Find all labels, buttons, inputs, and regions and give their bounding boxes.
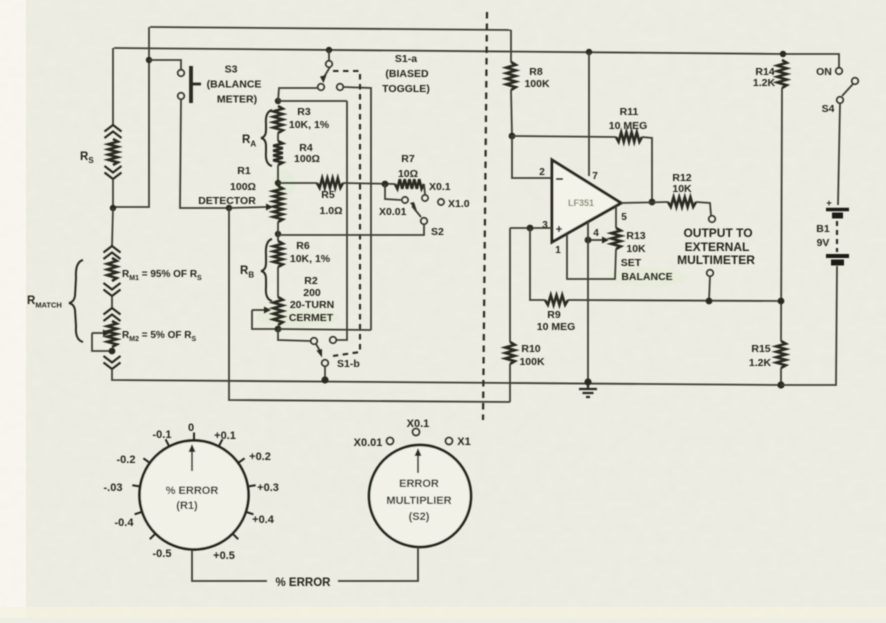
svg-text:OUTPUT TO: OUTPUT TO: [683, 226, 752, 240]
svg-text:BALANCE: BALANCE: [621, 271, 672, 283]
svg-text:R11: R11: [620, 106, 639, 118]
svg-text:(BALANCE: (BALANCE: [207, 79, 262, 91]
svg-text:R3: R3: [297, 106, 311, 118]
svg-text:S2: S2: [431, 226, 444, 238]
svg-text:20-TURN: 20-TURN: [290, 299, 334, 311]
svg-text:(R1): (R1): [176, 500, 198, 512]
svg-text:LF351: LF351: [568, 198, 594, 208]
svg-text:R15: R15: [751, 343, 770, 355]
svg-text:+0.2: +0.2: [249, 451, 271, 463]
svg-text:R13: R13: [626, 230, 645, 242]
svg-text:+0.4: +0.4: [252, 514, 275, 526]
svg-text:ERROR: ERROR: [399, 478, 439, 490]
svg-text:% ERROR: % ERROR: [276, 577, 332, 589]
svg-text:+: +: [826, 198, 832, 209]
svg-text:S1-a: S1-a: [395, 53, 417, 65]
svg-text:-0.2: -0.2: [117, 454, 136, 466]
svg-text:5: 5: [621, 212, 627, 223]
svg-text:METER): METER): [217, 94, 257, 106]
svg-text:-0.5: -0.5: [153, 548, 172, 560]
svg-text:4: 4: [593, 228, 599, 239]
svg-text:X0.1: X0.1: [407, 418, 430, 430]
svg-text:10 MEG: 10 MEG: [537, 321, 576, 333]
svg-text:EXTERNAL: EXTERNAL: [685, 240, 750, 254]
svg-text:100K: 100K: [524, 78, 550, 90]
svg-text:B1: B1: [816, 223, 830, 235]
svg-text:+0.5: +0.5: [213, 550, 235, 562]
svg-text:% ERROR: % ERROR: [166, 485, 219, 497]
svg-text:S3: S3: [225, 64, 238, 76]
svg-text:+0.1: +0.1: [214, 430, 236, 442]
svg-text:DETECTOR: DETECTOR: [198, 195, 256, 207]
svg-text:3: 3: [542, 220, 548, 231]
svg-text:S4: S4: [822, 103, 835, 115]
svg-text:10Ω: 10Ω: [398, 168, 418, 180]
svg-text:R9: R9: [547, 309, 561, 321]
svg-text:1.0Ω: 1.0Ω: [319, 205, 342, 217]
svg-text:-0.4: -0.4: [115, 517, 135, 529]
svg-text:1.2K: 1.2K: [753, 77, 776, 89]
svg-text:(S2): (S2): [409, 511, 430, 523]
svg-text:R5: R5: [321, 189, 335, 201]
svg-text:S1-b: S1-b: [337, 358, 360, 370]
svg-text:200: 200: [303, 287, 321, 299]
svg-text:MULTIMETER: MULTIMETER: [677, 253, 755, 267]
svg-text:R2: R2: [304, 275, 318, 287]
svg-text:9V: 9V: [817, 237, 830, 249]
svg-text:10K, 1%: 10K, 1%: [290, 253, 331, 265]
svg-text:R10: R10: [521, 343, 540, 355]
svg-text:1.2K: 1.2K: [749, 357, 772, 369]
svg-text:10K, 1%: 10K, 1%: [289, 119, 330, 131]
svg-text:TOGGLE): TOGGLE): [382, 83, 430, 95]
svg-text:0: 0: [188, 422, 194, 434]
svg-text:1: 1: [555, 245, 561, 256]
svg-text:X1.0: X1.0: [448, 198, 470, 210]
svg-text:100Ω: 100Ω: [294, 153, 320, 165]
svg-text:X0.01: X0.01: [379, 206, 407, 218]
svg-text:R1: R1: [237, 165, 251, 177]
svg-text:MULTIPLIER: MULTIPLIER: [386, 495, 451, 507]
svg-text:100Ω: 100Ω: [230, 181, 256, 193]
svg-text:2: 2: [539, 167, 545, 178]
svg-text:R8: R8: [529, 66, 543, 78]
svg-text:R6: R6: [296, 240, 310, 252]
svg-text:ON: ON: [816, 66, 832, 78]
svg-text:CERMET: CERMET: [289, 312, 334, 324]
svg-text:R7: R7: [401, 153, 415, 165]
svg-text:-.03: -.03: [104, 482, 123, 494]
svg-text:SET: SET: [621, 257, 642, 269]
svg-text:10K: 10K: [626, 243, 646, 255]
svg-text:7: 7: [592, 171, 598, 182]
svg-text:10 MEG: 10 MEG: [609, 120, 648, 132]
svg-text:+0.3: +0.3: [257, 482, 279, 494]
svg-text:-0.1: -0.1: [153, 429, 172, 441]
svg-text:100K: 100K: [519, 356, 545, 368]
svg-text:(BIASED: (BIASED: [385, 68, 429, 80]
svg-text:10K: 10K: [672, 183, 692, 195]
svg-text:X1: X1: [457, 436, 470, 448]
svg-text:X0.1: X0.1: [429, 181, 451, 193]
svg-text:X0.01: X0.01: [354, 437, 383, 449]
